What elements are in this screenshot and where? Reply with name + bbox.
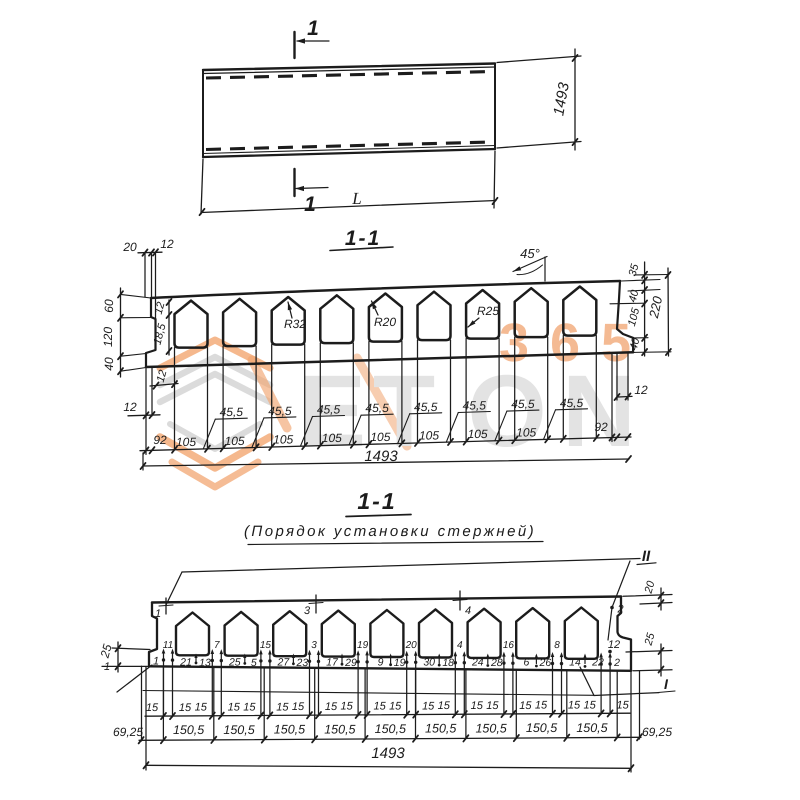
svg-text:15: 15 bbox=[260, 640, 272, 651]
svg-text:105: 105 bbox=[176, 435, 196, 449]
svg-text:4: 4 bbox=[457, 640, 463, 651]
svg-text:45,5: 45,5 bbox=[414, 400, 438, 414]
svg-text:105: 105 bbox=[468, 427, 488, 441]
svg-text:1: 1 bbox=[307, 17, 319, 40]
svg-text:12: 12 bbox=[160, 237, 174, 251]
svg-text:R32: R32 bbox=[284, 317, 306, 331]
svg-text:3: 3 bbox=[311, 640, 317, 651]
svg-text:15: 15 bbox=[325, 701, 338, 713]
svg-text:21: 21 bbox=[179, 657, 192, 669]
svg-text:1-1: 1-1 bbox=[357, 488, 396, 514]
svg-text:26: 26 bbox=[539, 657, 552, 669]
svg-text:15: 15 bbox=[616, 699, 629, 711]
svg-text:105: 105 bbox=[273, 432, 293, 446]
svg-text:18: 18 bbox=[442, 657, 454, 669]
svg-text:19: 19 bbox=[357, 640, 369, 651]
svg-text:92: 92 bbox=[153, 433, 167, 447]
svg-text:27: 27 bbox=[277, 657, 291, 669]
svg-text:1493: 1493 bbox=[364, 448, 398, 465]
svg-text:1: 1 bbox=[104, 661, 110, 673]
svg-text:150,5: 150,5 bbox=[173, 723, 204, 737]
svg-text:92: 92 bbox=[594, 420, 608, 434]
svg-text:15: 15 bbox=[568, 700, 581, 712]
svg-text:6: 6 bbox=[550, 313, 580, 373]
svg-text:15: 15 bbox=[471, 700, 484, 712]
svg-text:105: 105 bbox=[516, 426, 536, 440]
svg-text:120: 120 bbox=[101, 327, 115, 347]
svg-text:12: 12 bbox=[634, 383, 648, 397]
svg-text:1: 1 bbox=[153, 655, 159, 667]
svg-text:15: 15 bbox=[519, 700, 532, 712]
svg-text:150,5: 150,5 bbox=[425, 722, 456, 736]
svg-text:20: 20 bbox=[122, 240, 137, 254]
svg-text:15: 15 bbox=[535, 700, 548, 712]
svg-text:17: 17 bbox=[326, 657, 339, 669]
svg-text:25: 25 bbox=[228, 657, 241, 669]
svg-text:15: 15 bbox=[438, 700, 451, 712]
svg-text:150,5: 150,5 bbox=[223, 723, 254, 737]
svg-text:15: 15 bbox=[179, 702, 192, 714]
svg-text:11: 11 bbox=[163, 640, 173, 651]
svg-text:45°: 45° bbox=[520, 246, 540, 261]
svg-text:69,25: 69,25 bbox=[113, 725, 143, 739]
svg-text:L: L bbox=[351, 189, 361, 208]
svg-text:15: 15 bbox=[195, 702, 208, 714]
svg-text:4: 4 bbox=[465, 605, 471, 617]
svg-text:40: 40 bbox=[102, 357, 116, 371]
svg-text:45,5: 45,5 bbox=[220, 405, 244, 419]
svg-text:45,5: 45,5 bbox=[560, 396, 584, 410]
svg-text:23: 23 bbox=[296, 657, 309, 669]
svg-text:20: 20 bbox=[405, 640, 418, 651]
svg-text:150,5: 150,5 bbox=[576, 721, 607, 735]
svg-text:13: 13 bbox=[199, 657, 211, 669]
svg-text:3: 3 bbox=[304, 605, 311, 617]
svg-text:15: 15 bbox=[486, 700, 499, 712]
svg-text:15: 15 bbox=[292, 701, 305, 713]
svg-text:14: 14 bbox=[569, 657, 581, 669]
svg-text:1-1: 1-1 bbox=[345, 227, 381, 250]
svg-text:6: 6 bbox=[523, 657, 529, 669]
svg-text:1493: 1493 bbox=[371, 745, 405, 762]
svg-text:29: 29 bbox=[344, 657, 357, 669]
svg-text:69,25: 69,25 bbox=[642, 725, 672, 739]
svg-text:150,5: 150,5 bbox=[274, 723, 305, 737]
svg-text:150,5: 150,5 bbox=[475, 721, 506, 735]
svg-text:16: 16 bbox=[503, 640, 515, 651]
svg-text:105: 105 bbox=[322, 431, 342, 445]
svg-text:12: 12 bbox=[608, 639, 620, 651]
svg-text:7: 7 bbox=[214, 640, 220, 651]
svg-text:1: 1 bbox=[155, 608, 161, 620]
svg-text:2: 2 bbox=[616, 604, 623, 616]
svg-text:30: 30 bbox=[423, 657, 435, 669]
svg-text:105: 105 bbox=[419, 428, 439, 442]
svg-text:5: 5 bbox=[251, 657, 257, 669]
svg-text:1: 1 bbox=[304, 193, 316, 216]
svg-text:15: 15 bbox=[243, 701, 256, 713]
svg-text:15: 15 bbox=[340, 701, 353, 713]
svg-text:22: 22 bbox=[591, 657, 604, 669]
svg-text:(Порядок установки стержней): (Порядок установки стержней) bbox=[244, 523, 536, 540]
svg-text:150,5: 150,5 bbox=[526, 721, 557, 735]
svg-text:45,5: 45,5 bbox=[268, 404, 292, 418]
svg-text:R20: R20 bbox=[374, 315, 396, 329]
svg-text:19: 19 bbox=[394, 657, 406, 669]
svg-text:150,5: 150,5 bbox=[324, 722, 355, 736]
svg-text:R25: R25 bbox=[477, 304, 499, 318]
svg-text:15: 15 bbox=[389, 700, 402, 712]
svg-text:15: 15 bbox=[373, 701, 386, 713]
svg-text:15: 15 bbox=[422, 700, 435, 712]
svg-text:24: 24 bbox=[471, 657, 484, 669]
svg-text:12: 12 bbox=[123, 400, 137, 414]
svg-text:9: 9 bbox=[378, 657, 384, 669]
svg-text:15: 15 bbox=[146, 702, 159, 714]
svg-text:105: 105 bbox=[370, 430, 390, 444]
svg-text:15: 15 bbox=[583, 699, 596, 711]
svg-text:8: 8 bbox=[554, 640, 560, 651]
svg-text:28: 28 bbox=[490, 657, 503, 669]
svg-text:60: 60 bbox=[102, 299, 116, 313]
svg-text:45,5: 45,5 bbox=[365, 401, 389, 415]
svg-text:45,5: 45,5 bbox=[463, 398, 487, 412]
svg-text:150,5: 150,5 bbox=[375, 722, 406, 736]
svg-text:45,5: 45,5 bbox=[511, 397, 535, 411]
svg-text:15: 15 bbox=[276, 701, 289, 713]
svg-text:II: II bbox=[642, 548, 651, 565]
svg-text:105: 105 bbox=[225, 434, 245, 448]
svg-text:2: 2 bbox=[613, 657, 620, 669]
svg-text:15: 15 bbox=[228, 702, 241, 714]
svg-text:45,5: 45,5 bbox=[317, 403, 341, 417]
